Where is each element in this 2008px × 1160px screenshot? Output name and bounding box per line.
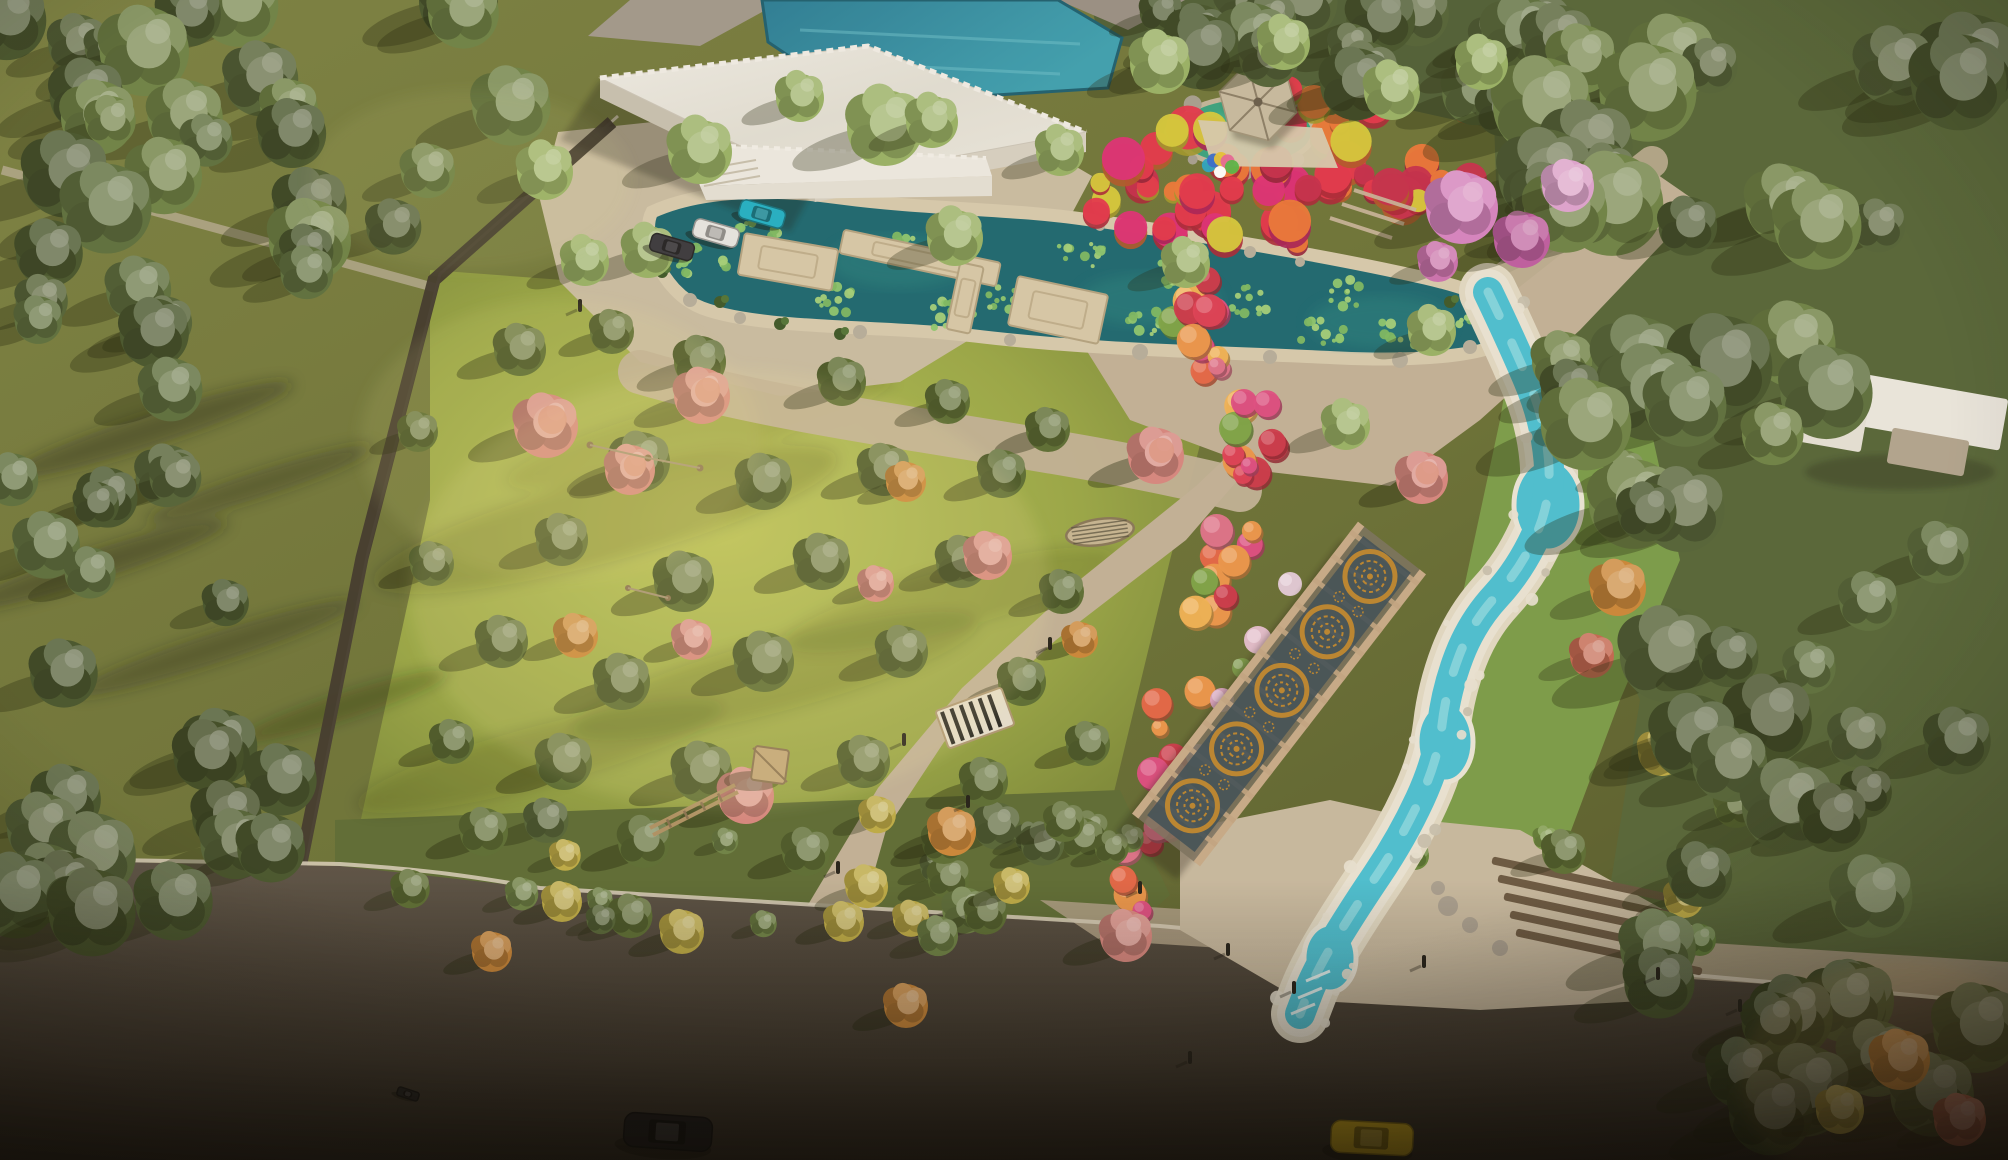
scene-canvas — [0, 0, 2008, 1160]
park-aerial-rendering — [0, 0, 2008, 1160]
vignette — [0, 0, 2008, 1160]
